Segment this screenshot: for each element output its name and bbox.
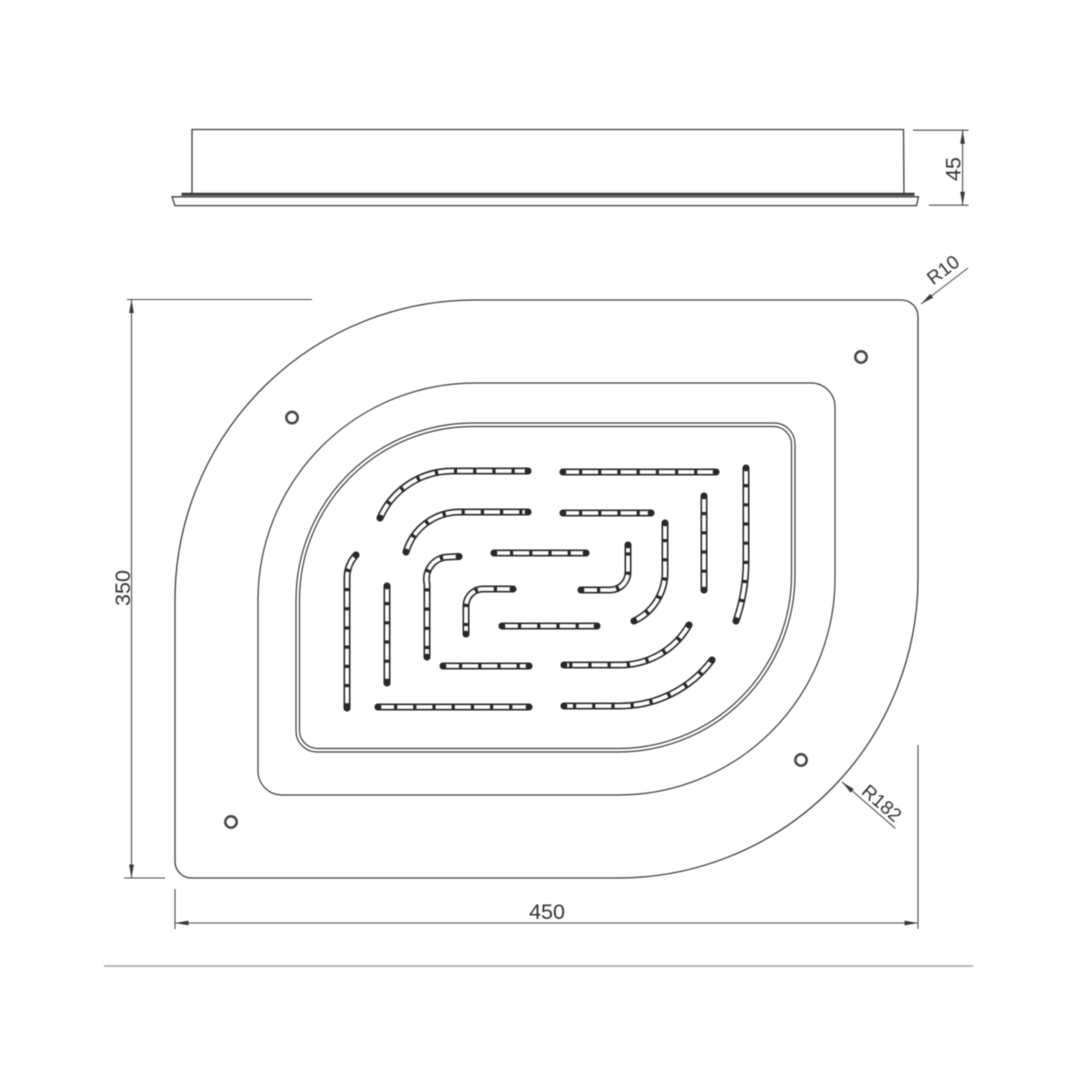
svg-text:45: 45 [942, 157, 966, 181]
svg-text:R10: R10 [923, 252, 963, 290]
svg-text:350: 350 [111, 570, 135, 606]
svg-text:R182: R182 [857, 781, 905, 827]
svg-text:450: 450 [529, 900, 565, 924]
